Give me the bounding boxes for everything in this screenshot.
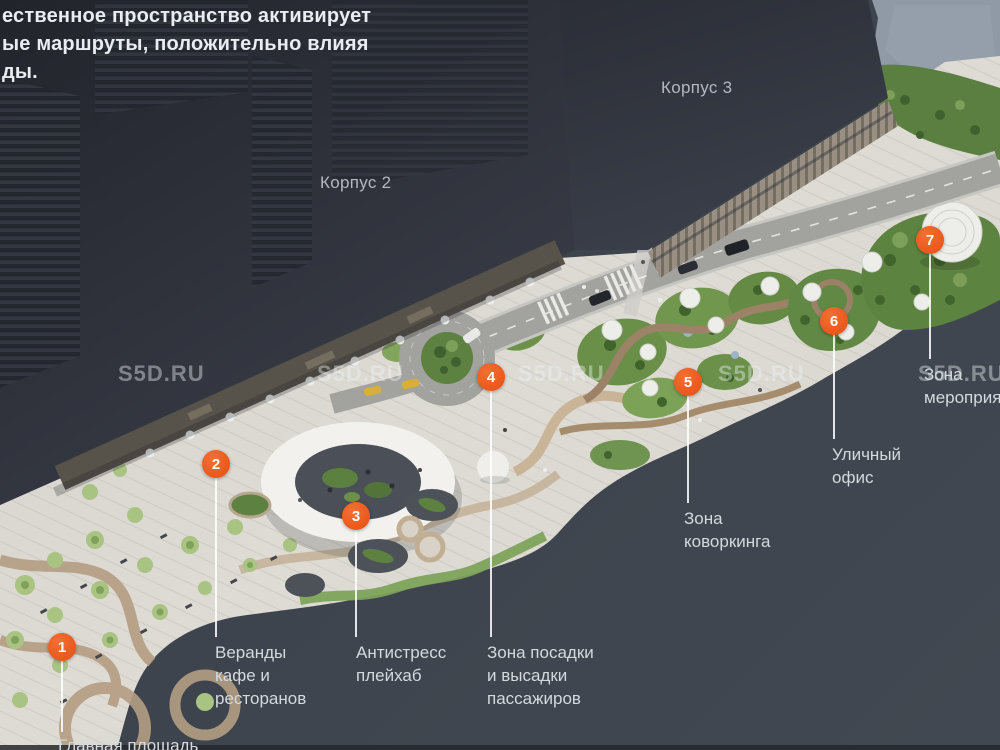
marker-badge-7: 7 [916, 226, 944, 254]
watermark: S5D.RU [718, 361, 805, 387]
marker-label-2: Веранды кафе и ресторанов [215, 641, 307, 710]
marker-badge-1: 1 [48, 633, 76, 661]
watermark: S5D.RU [518, 361, 605, 387]
masterplan-slide: ественное пространство активирует ые мар… [0, 0, 1000, 750]
marker-label-1: Главная площадь [58, 734, 218, 750]
building-label-korpus-3: Корпус 3 [661, 78, 732, 98]
marker-label-5: Зона коворкинга [684, 507, 784, 553]
marker-badge-6: 6 [820, 307, 848, 335]
leader-line-6 [833, 334, 835, 439]
leader-line-5 [687, 395, 689, 503]
leader-line-7 [929, 253, 931, 359]
intro-text: ественное пространство активирует ые мар… [0, 2, 432, 86]
leader-line-2 [215, 477, 217, 637]
marker-label-3: Антистресс плейхаб [356, 641, 452, 687]
leader-line-1 [61, 660, 63, 732]
intro-line-1: ественное пространство активирует [2, 2, 432, 30]
marker-badge-2: 2 [202, 450, 230, 478]
watermark: S5D.RU [118, 361, 205, 387]
watermark: S5D.RU [317, 361, 404, 387]
marker-badge-4: 4 [477, 363, 505, 391]
marker-label-6: Уличный офис [832, 443, 914, 489]
leader-line-3 [355, 529, 357, 637]
marker-label-7: Зона мероприятий [924, 363, 1000, 409]
leader-line-4 [490, 390, 492, 637]
marker-label-4: Зона посадки и высадки пассажиров [487, 641, 599, 710]
intro-line-2: ые маршруты, положительно влияя [2, 30, 432, 58]
marker-badge-5: 5 [674, 368, 702, 396]
intro-line-3: ды. [2, 58, 432, 86]
marker-badge-3: 3 [342, 502, 370, 530]
building-label-korpus-2: Корпус 2 [320, 173, 391, 193]
